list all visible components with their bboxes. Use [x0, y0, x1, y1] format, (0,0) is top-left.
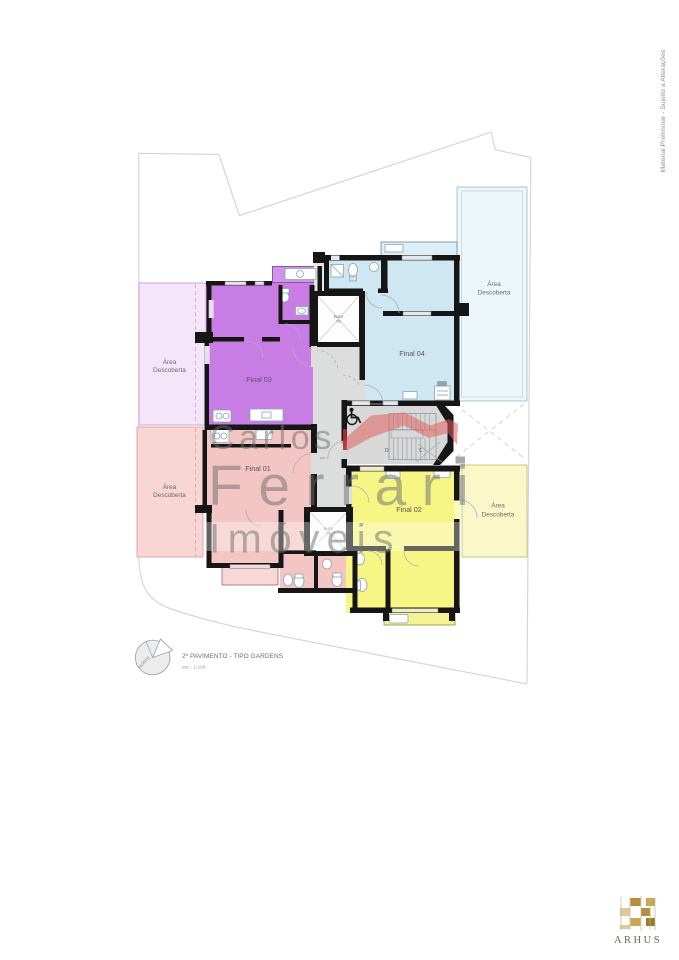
svg-text:Descoberta: Descoberta: [482, 512, 515, 519]
svg-text:Área: Área: [163, 357, 177, 366]
svg-text:ELEV: ELEV: [334, 315, 344, 319]
svg-text:Carlos: Carlos: [210, 419, 336, 457]
svg-text:03: 03: [337, 320, 341, 324]
svg-text:ARHUS: ARHUS: [614, 935, 662, 946]
svg-text:Descoberta: Descoberta: [478, 290, 511, 297]
svg-text:Final 04: Final 04: [399, 349, 425, 358]
svg-text:esc.: 1:100: esc.: 1:100: [182, 665, 206, 671]
svg-text:Descoberta: Descoberta: [153, 367, 186, 374]
svg-text:Área: Área: [163, 482, 177, 491]
svg-text:Descoberta: Descoberta: [153, 492, 186, 499]
svg-text:Material Preliminar - Sujeito: Material Preliminar - Sujeito a Alteraçõ…: [660, 49, 667, 172]
svg-text:Final 03: Final 03: [246, 375, 272, 384]
svg-text:Ferrari: Ferrari: [208, 454, 484, 518]
svg-text:2º PAVIMENTO - TIPO GARDENS: 2º PAVIMENTO - TIPO GARDENS: [182, 653, 284, 660]
svg-text:Imóveis: Imóveis: [209, 516, 401, 562]
svg-text:Área: Área: [491, 501, 505, 510]
svg-text:Área: Área: [487, 279, 501, 288]
